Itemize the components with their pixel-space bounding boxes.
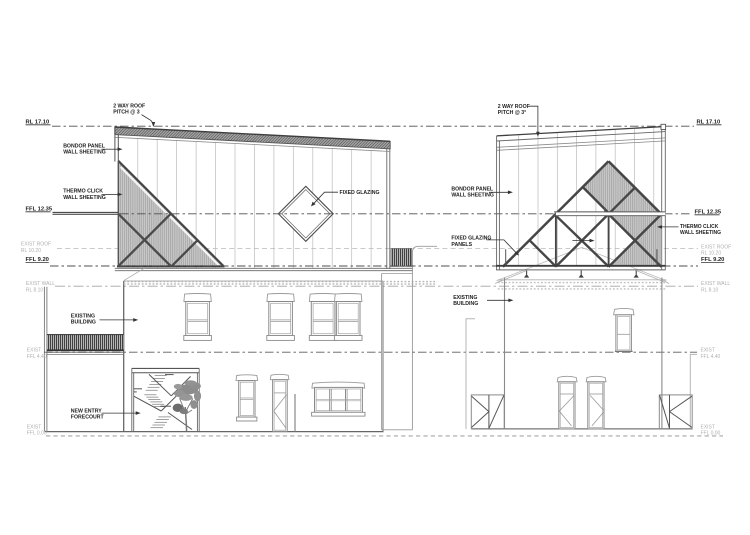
svg-text:EXIST ROOF: EXIST ROOF [21, 242, 51, 248]
svg-text:FORECOURT: FORECOURT [71, 415, 105, 421]
svg-text:NEW ENTRY: NEW ENTRY [71, 408, 102, 414]
svg-text:BUILDING: BUILDING [71, 320, 96, 326]
svg-text:THERMO CLICK: THERMO CLICK [63, 189, 103, 195]
svg-text:FFL 4.40: FFL 4.40 [701, 354, 721, 360]
svg-text:EXISTING: EXISTING [71, 314, 95, 320]
svg-text:FIXED GLAZING: FIXED GLAZING [340, 190, 380, 196]
svg-text:THERMO CLICK: THERMO CLICK [680, 224, 719, 230]
svg-text:EXIST ROOF: EXIST ROOF [701, 244, 731, 250]
svg-text:WALL SHEETING: WALL SHEETING [63, 195, 106, 201]
svg-text:EXIST: EXIST [701, 424, 715, 430]
svg-text:2 WAY ROOF: 2 WAY ROOF [113, 104, 145, 110]
svg-text:EXIST WALL: EXIST WALL [26, 281, 55, 287]
svg-text:EXIST WALL: EXIST WALL [701, 281, 730, 287]
svg-text:FFL 0.00: FFL 0.00 [701, 431, 721, 437]
svg-text:WALL SHEETING: WALL SHEETING [451, 193, 494, 199]
svg-text:WALL SHEETING: WALL SHEETING [63, 150, 106, 156]
svg-text:RL 8.10: RL 8.10 [701, 287, 719, 293]
svg-text:2 WAY ROOF: 2 WAY ROOF [498, 104, 530, 110]
svg-text:EXIST: EXIST [701, 348, 715, 354]
svg-text:WALL SHEETING: WALL SHEETING [680, 230, 721, 236]
svg-text:FFL 4.40: FFL 4.40 [27, 354, 47, 360]
svg-text:PANELS: PANELS [451, 242, 472, 248]
svg-text:EXIST: EXIST [27, 424, 41, 430]
svg-text:RL 10.20: RL 10.20 [21, 248, 41, 254]
svg-text:EXISTING: EXISTING [453, 295, 477, 301]
svg-text:BONDOR PANEL: BONDOR PANEL [63, 143, 106, 149]
svg-text:BONDOR PANEL: BONDOR PANEL [451, 187, 494, 193]
svg-text:EXIST: EXIST [27, 348, 41, 354]
svg-text:PITCH @ 3°: PITCH @ 3° [498, 110, 526, 116]
svg-text:PITCH @ 3: PITCH @ 3 [113, 110, 140, 116]
svg-text:FFL 0.00: FFL 0.00 [27, 431, 47, 437]
svg-text:FIXED GLAZING: FIXED GLAZING [451, 236, 491, 242]
svg-text:RL 8.10: RL 8.10 [26, 287, 44, 293]
svg-text:RL 10.20: RL 10.20 [701, 251, 721, 257]
svg-text:BUILDING: BUILDING [453, 301, 478, 307]
